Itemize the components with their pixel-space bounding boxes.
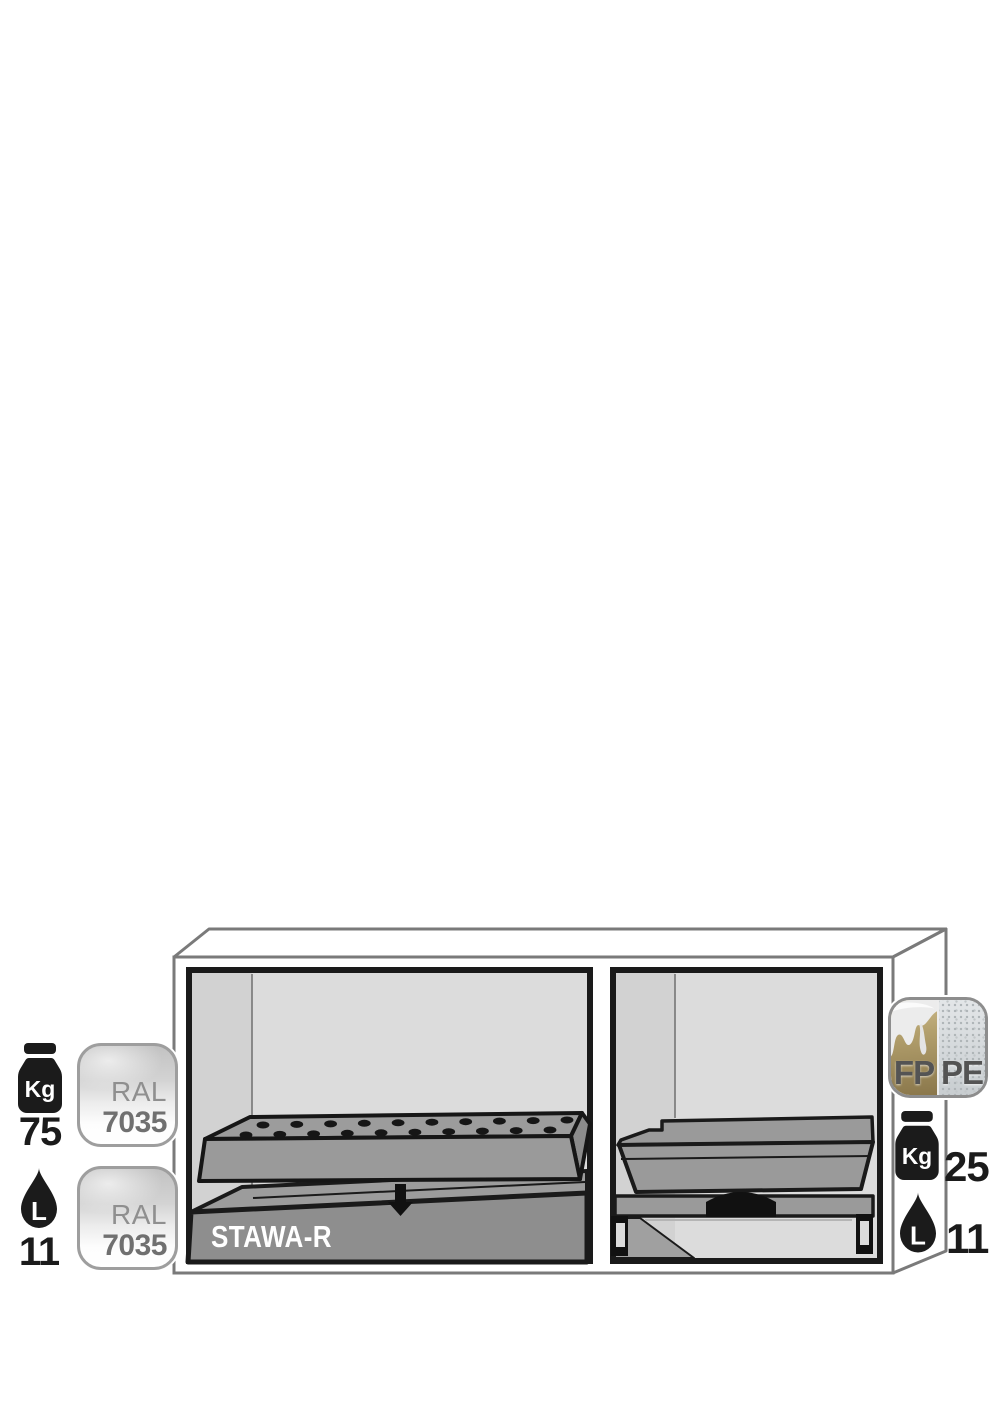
shelf-hole [476, 1128, 489, 1135]
shelf-hole [544, 1127, 557, 1134]
ral-code: 7035 [102, 1230, 167, 1262]
shelf-hole [527, 1117, 540, 1124]
perforated-shelf [199, 1113, 590, 1181]
material-pe-half: PE [939, 1000, 985, 1095]
shelf-hole [409, 1129, 422, 1136]
shelf-hole [257, 1122, 270, 1129]
ral-color-badge-top: RAL 7035 [77, 1043, 178, 1147]
cabinet-top-face [174, 929, 946, 957]
shelf-hole [240, 1132, 253, 1139]
load-capacity-value-right: 25 [944, 1146, 989, 1188]
shelf-hole [375, 1129, 388, 1136]
shelf-hole [392, 1119, 405, 1126]
shelf-hole [341, 1130, 354, 1137]
weight-capacity-badge-right: Kg [893, 1110, 941, 1186]
shelf-hole [459, 1118, 472, 1125]
shelf-hole [493, 1118, 506, 1125]
mobile-sump-body [619, 1142, 873, 1192]
droplet-icon: L [897, 1191, 939, 1256]
weight-unit-label: Kg [902, 1143, 932, 1169]
rail-bracket-right [856, 1214, 873, 1254]
shelf-hole [426, 1119, 439, 1126]
weight-icon: Kg [893, 1110, 941, 1181]
shelf-hole [307, 1130, 320, 1137]
material-badge: FP PE [888, 997, 988, 1098]
right-compartment [611, 970, 880, 1261]
volume-unit-label: L [910, 1221, 926, 1251]
shelf-front-face [199, 1136, 580, 1181]
page: STAWA-R [0, 0, 1004, 1419]
weight-capacity-badge-left: Kg [16, 1042, 64, 1119]
volume-capacity-value-left: 11 [7, 1232, 71, 1272]
ral-prefix: RAL [111, 1200, 167, 1229]
sump-label: STAWA-R [211, 1220, 332, 1255]
shelf-hole [273, 1131, 286, 1138]
weight-unit-label: Kg [25, 1076, 56, 1102]
material-fp-half: FP [891, 1000, 937, 1095]
material-fp-label: FP [891, 1056, 937, 1089]
volume-capacity-value-right: 11 [946, 1218, 988, 1260]
droplet-icon: L [18, 1167, 60, 1231]
volume-capacity-badge-left: L [18, 1167, 60, 1236]
shelf-hole [510, 1127, 523, 1134]
weight-icon: Kg [16, 1042, 64, 1114]
shelf-hole [561, 1117, 574, 1124]
load-capacity-value-left: 75 [8, 1112, 72, 1152]
left-compartment: STAWA-R [188, 970, 590, 1262]
ral-prefix: RAL [111, 1077, 167, 1106]
ral-color-badge-bottom: RAL 7035 [77, 1166, 178, 1270]
material-pe-label: PE [939, 1056, 985, 1089]
volume-unit-label: L [31, 1196, 47, 1226]
ral-code: 7035 [102, 1107, 167, 1139]
volume-capacity-badge-right: L [897, 1191, 939, 1261]
rail-bracket-left [611, 1216, 628, 1256]
shelf-hole [358, 1120, 371, 1127]
shelf-hole [442, 1128, 455, 1135]
shelf-hole [290, 1121, 303, 1128]
shelf-hole [324, 1120, 337, 1127]
mobile-sump-tray [618, 1117, 873, 1192]
